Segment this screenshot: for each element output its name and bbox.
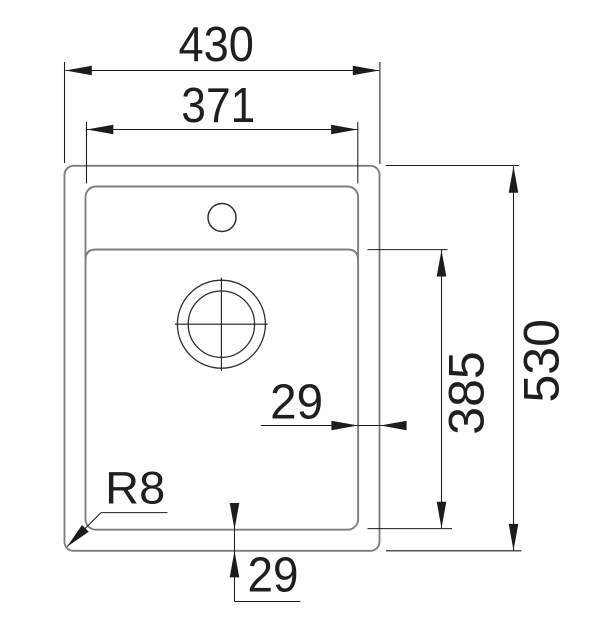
svg-text:385: 385 <box>438 351 494 434</box>
svg-text:530: 530 <box>513 319 569 402</box>
svg-text:R8: R8 <box>105 462 165 513</box>
svg-text:29: 29 <box>248 548 299 602</box>
svg-text:29: 29 <box>270 376 323 430</box>
svg-text:371: 371 <box>181 79 255 133</box>
svg-text:430: 430 <box>178 18 254 72</box>
